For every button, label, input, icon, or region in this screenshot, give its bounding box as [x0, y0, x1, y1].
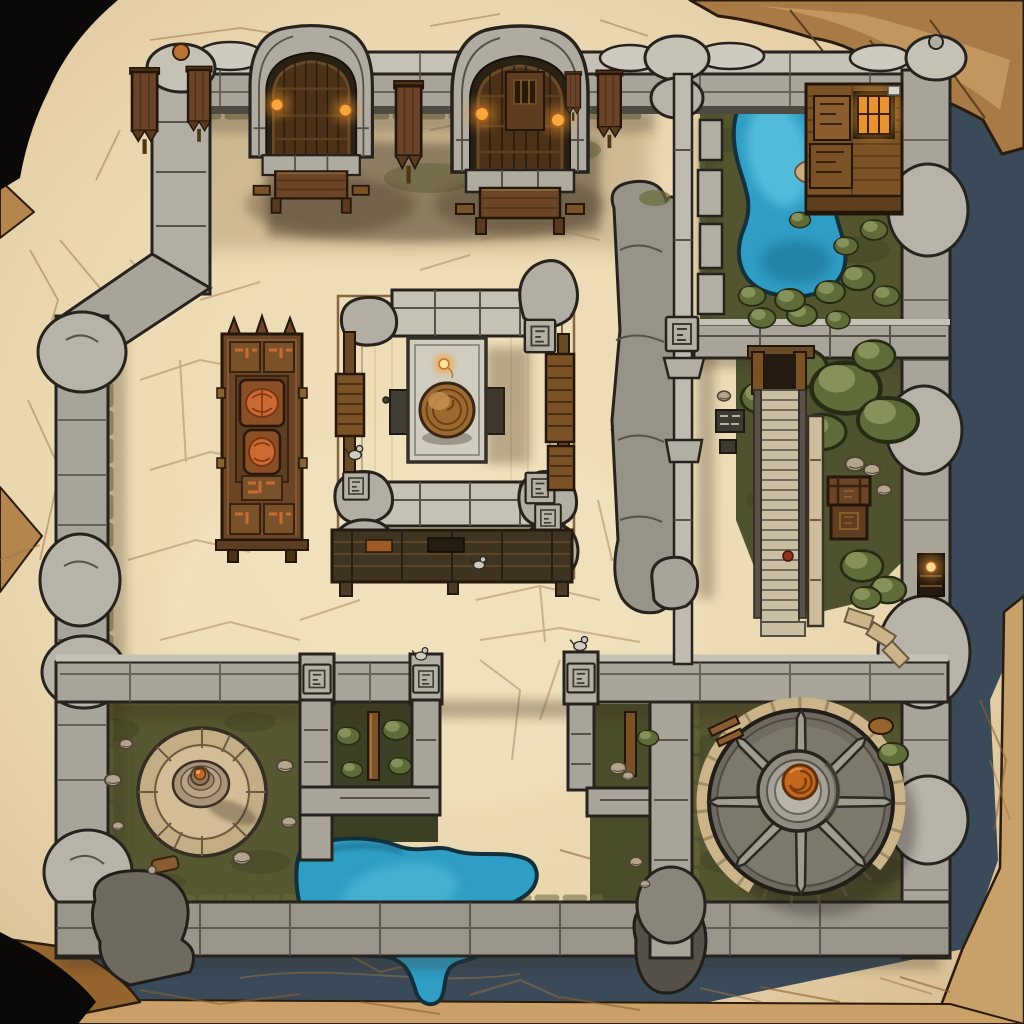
brazier-dome	[420, 383, 474, 445]
battle-map	[0, 0, 1024, 1024]
wheel-hub	[758, 751, 838, 831]
rock-edge-bottom	[0, 1000, 1024, 1024]
pillar-capital-2	[666, 440, 702, 462]
ne-tower-finial	[929, 35, 943, 49]
cabin-crate-2	[810, 144, 852, 188]
west-bulge	[38, 312, 126, 392]
spire	[173, 761, 229, 807]
mid-wall-a	[56, 662, 302, 702]
cabin-chip	[888, 86, 900, 95]
nw-tower-finial	[173, 44, 189, 60]
pillar-foot	[652, 557, 698, 609]
rune-plaque	[567, 664, 594, 693]
bench-item-dark	[428, 538, 464, 552]
gatehouse-east-door	[506, 72, 544, 130]
stair-rail-left	[754, 390, 761, 618]
mid-wall-c	[596, 662, 948, 702]
stair-rail-right	[799, 390, 806, 618]
altar-shadow	[486, 348, 530, 464]
pond-deep	[760, 240, 832, 284]
south-rock-clump	[92, 871, 193, 985]
supply-chest	[828, 477, 870, 539]
cabinet-base-rail	[216, 540, 308, 550]
stair-run	[761, 390, 799, 622]
rune-plaque	[413, 665, 439, 692]
cabin-crate	[814, 96, 850, 140]
timber-beam	[368, 712, 379, 780]
wall-moss-bush	[749, 308, 776, 328]
cabin-ledge	[806, 196, 902, 212]
wheel-core	[783, 765, 817, 799]
cabin	[806, 84, 902, 214]
west-carved-cabinet	[216, 316, 308, 562]
stair-post	[752, 352, 764, 394]
pond-ledge-blocks	[698, 120, 724, 314]
pillar-bulge	[637, 867, 705, 943]
ridge-moss	[639, 190, 671, 206]
spire-tip	[195, 769, 206, 780]
carved-medallion-2	[244, 430, 280, 474]
stair-figure	[783, 551, 793, 561]
bench-item-orange	[366, 540, 392, 552]
east-wall-alcove	[918, 554, 944, 596]
chest-body	[831, 505, 867, 539]
carved-medallion-1	[240, 380, 284, 426]
carved-rune-panel	[242, 476, 282, 500]
stair-doorway	[764, 354, 796, 390]
mid-wall-b	[334, 662, 412, 702]
divider-body	[694, 324, 950, 358]
west-bulge	[40, 534, 120, 626]
battle-map-canvas	[0, 0, 1024, 1024]
alcove-torch-icon	[926, 562, 937, 573]
stair-landing	[761, 622, 805, 636]
rune-plaque	[666, 317, 698, 351]
rune-plaque	[303, 665, 330, 694]
wall-moss-bush	[826, 311, 850, 329]
pillar-capital	[664, 358, 704, 378]
cap-boulder	[850, 45, 910, 71]
